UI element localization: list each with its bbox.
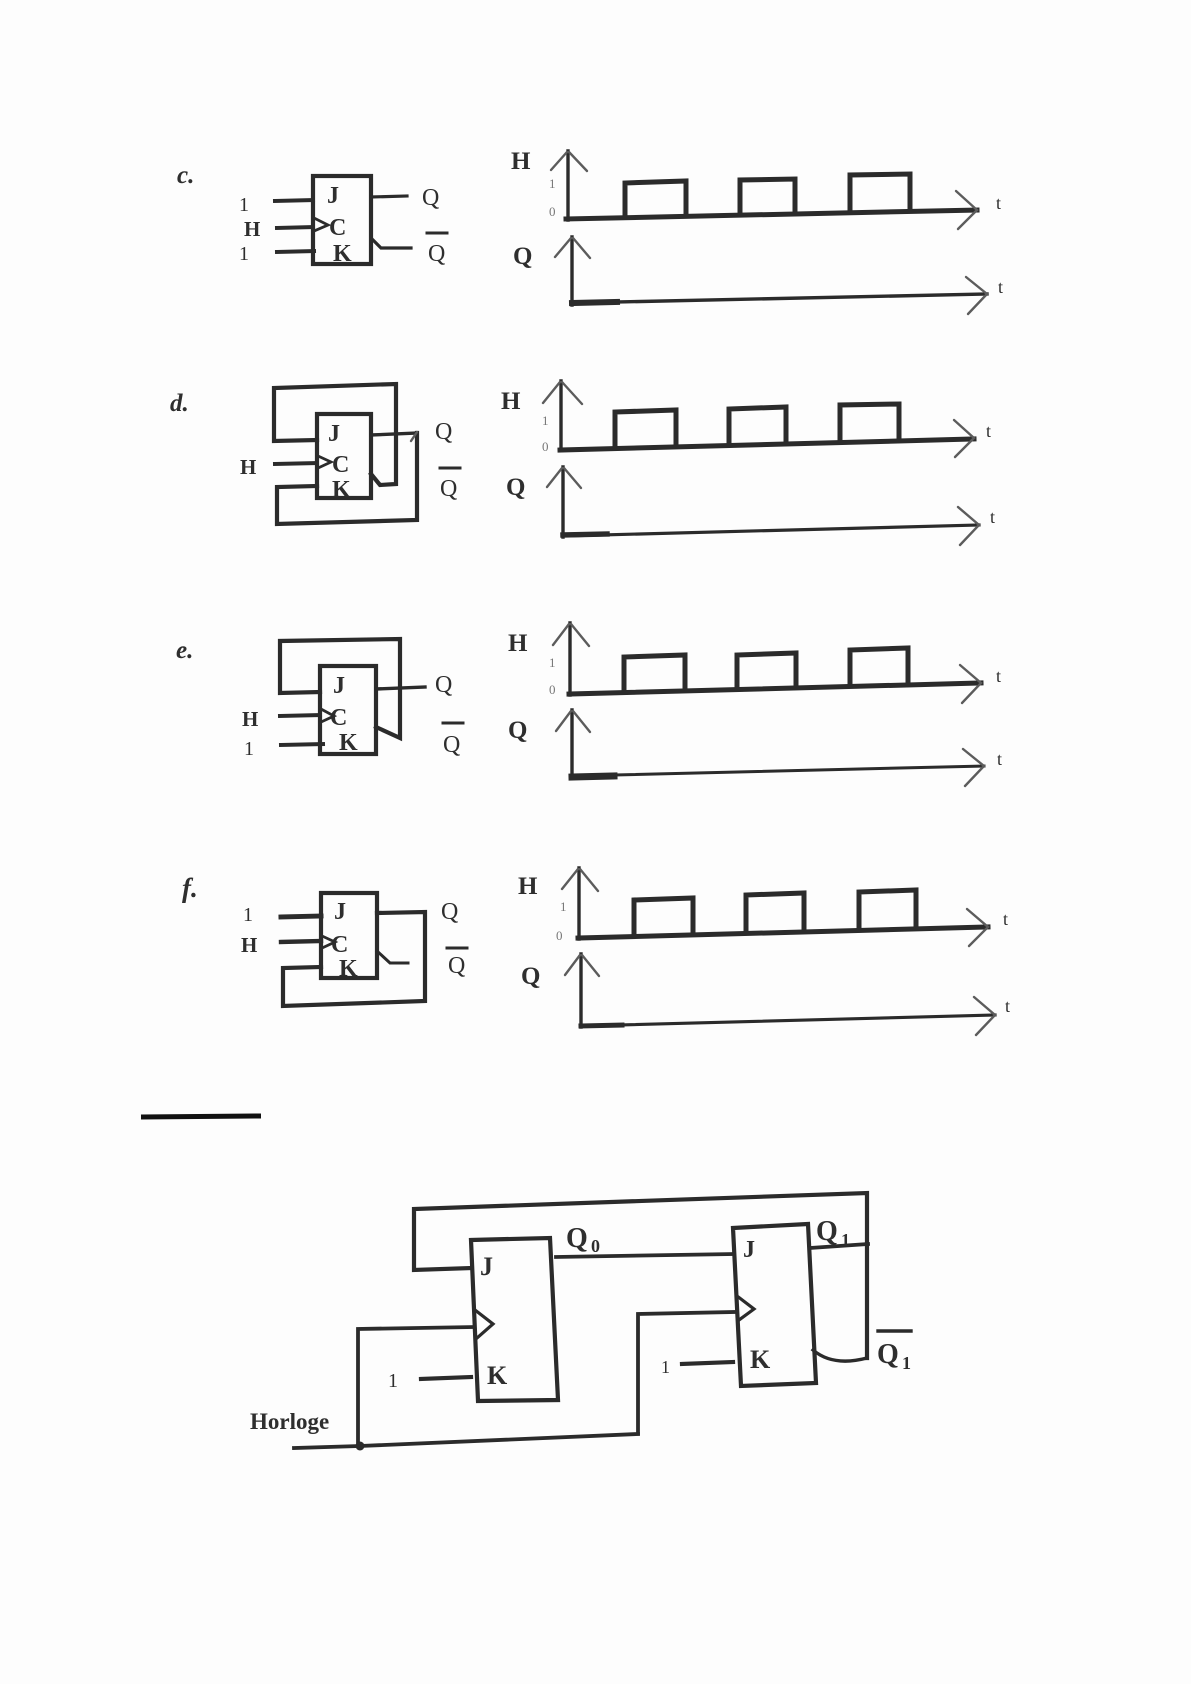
svg-text:1: 1: [239, 243, 249, 265]
svg-text:1: 1: [841, 1230, 850, 1250]
svg-text:Q: Q: [422, 185, 439, 211]
svg-text:Q: Q: [521, 963, 540, 990]
svg-text:t: t: [1005, 996, 1010, 1016]
svg-text:H: H: [241, 933, 257, 957]
svg-text:e.: e.: [176, 637, 193, 664]
svg-text:Q: Q: [448, 953, 465, 979]
svg-text:Q: Q: [816, 1216, 838, 1247]
svg-text:Q: Q: [566, 1223, 588, 1254]
svg-text:Q: Q: [877, 1339, 899, 1370]
svg-text:t: t: [1003, 909, 1008, 929]
svg-text:Q: Q: [440, 476, 457, 502]
svg-text:0: 0: [549, 682, 556, 697]
svg-text:C: C: [331, 932, 348, 958]
svg-text:K: K: [339, 956, 358, 982]
svg-text:t: t: [996, 666, 1001, 686]
svg-text:H: H: [501, 388, 521, 415]
svg-text:0: 0: [542, 439, 549, 454]
svg-text:H: H: [242, 707, 258, 731]
svg-text:C: C: [332, 452, 349, 478]
svg-text:K: K: [339, 730, 358, 756]
svg-text:1: 1: [549, 176, 556, 191]
svg-text:Q: Q: [443, 732, 460, 758]
svg-text:1: 1: [243, 904, 253, 926]
svg-text:c.: c.: [177, 162, 194, 189]
svg-text:t: t: [986, 421, 991, 441]
svg-text:f.: f.: [182, 873, 198, 903]
svg-text:H: H: [511, 148, 531, 175]
svg-text:1: 1: [388, 1370, 398, 1392]
svg-text:K: K: [487, 1361, 508, 1390]
svg-text:Q: Q: [435, 419, 452, 445]
svg-text:1: 1: [549, 655, 556, 670]
svg-text:0: 0: [591, 1236, 600, 1256]
svg-text:J: J: [333, 673, 345, 699]
svg-text:J: J: [328, 421, 340, 447]
svg-text:Q: Q: [508, 717, 527, 744]
svg-text:K: K: [750, 1345, 771, 1374]
svg-text:C: C: [329, 215, 346, 241]
svg-text:J: J: [480, 1252, 493, 1281]
svg-text:K: K: [332, 477, 351, 503]
svg-text:1: 1: [244, 738, 254, 760]
svg-text:J: J: [334, 899, 346, 925]
svg-text:0: 0: [549, 204, 556, 219]
svg-text:d.: d.: [170, 390, 189, 417]
svg-text:1: 1: [902, 1353, 911, 1373]
svg-text:Horloge: Horloge: [250, 1409, 329, 1434]
svg-text:1: 1: [239, 194, 249, 216]
svg-text:J: J: [743, 1237, 755, 1263]
svg-text:1: 1: [542, 413, 549, 428]
svg-text:1: 1: [661, 1357, 670, 1377]
svg-text:K: K: [333, 241, 352, 267]
svg-text:Q: Q: [506, 474, 525, 501]
svg-text:t: t: [997, 749, 1002, 769]
svg-text:0: 0: [556, 928, 563, 943]
svg-text:Q: Q: [435, 672, 452, 698]
svg-text:H: H: [244, 217, 260, 241]
svg-text:t: t: [990, 507, 995, 527]
svg-text:H: H: [518, 873, 538, 900]
svg-text:t: t: [996, 193, 1001, 213]
svg-text:Q: Q: [441, 899, 458, 925]
svg-text:Q: Q: [428, 241, 445, 267]
svg-text:H: H: [240, 455, 256, 479]
svg-text:H: H: [508, 630, 528, 657]
svg-text:J: J: [327, 183, 339, 209]
svg-text:Q: Q: [513, 243, 532, 270]
svg-text:1: 1: [560, 899, 567, 914]
svg-text:t: t: [998, 277, 1003, 297]
